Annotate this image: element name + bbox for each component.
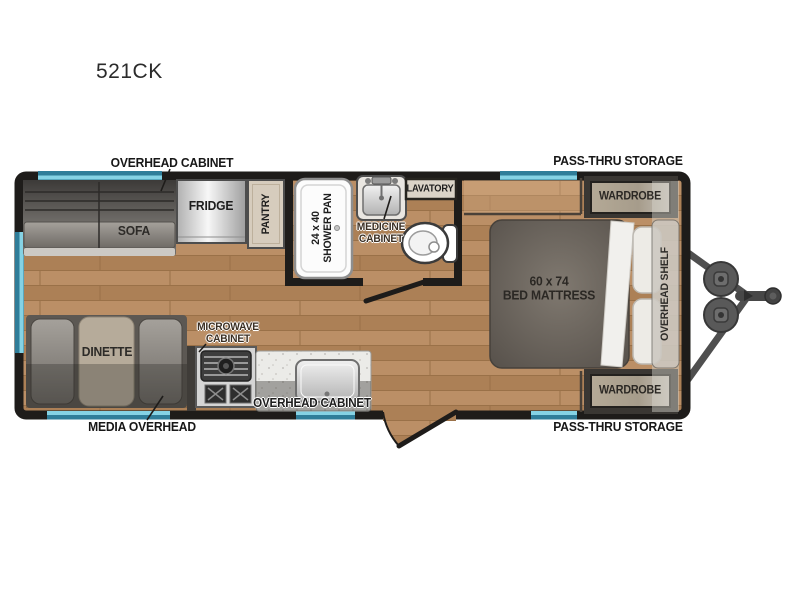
label-bed-mattress: 60 x 74 BED MATTRESS [503, 275, 595, 304]
label-pass-thru-storage-top: PASS-THRU STORAGE [553, 154, 682, 168]
label-overhead-shelf: OVERHEAD SHELF [659, 247, 671, 341]
window-top-right [500, 171, 577, 180]
hitch-tongue [684, 250, 781, 385]
label-shower-pan: 24 x 40 SHOWER PAN [310, 193, 334, 262]
sofa [23, 180, 176, 256]
label-fridge: FRIDGE [189, 199, 234, 213]
entry-door [383, 410, 456, 446]
label-lavatory: LAVATORY [406, 184, 453, 195]
window-top-left [38, 171, 162, 180]
dinette [26, 315, 187, 408]
label-pass-thru-storage-bottom: PASS-THRU STORAGE [553, 420, 682, 434]
label-dinette: DINETTE [82, 345, 132, 359]
label-sofa: SOFA [118, 224, 150, 238]
toilet [402, 223, 457, 263]
window-rear-left [15, 232, 24, 353]
label-pantry: PANTRY [260, 194, 272, 235]
window-bottom-center [296, 411, 355, 420]
label-wardrobe-bottom: WARDROBE [599, 385, 661, 398]
label-microwave-cabinet: MICROWAVE CABINET [197, 321, 259, 345]
label-wardrobe-top: WARDROBE [599, 191, 661, 204]
floorplan-model-title: 521CK [96, 60, 163, 84]
stove [196, 347, 256, 407]
floorplan-canvas: 521CK OVERHEAD CABINET PASS-THRU STORAGE… [0, 0, 800, 600]
floorplan-graphics [0, 0, 800, 600]
bathroom-sink [357, 176, 406, 220]
propane-tanks [704, 262, 738, 332]
label-media-overhead: MEDIA OVERHEAD [88, 420, 196, 434]
label-overhead-cabinet-kitchen: OVERHEAD CABINET [253, 397, 371, 411]
label-overhead-cabinet-top: OVERHEAD CABINET [111, 156, 234, 170]
label-medicine-cabinet: MEDICINE CABINET [357, 221, 406, 245]
